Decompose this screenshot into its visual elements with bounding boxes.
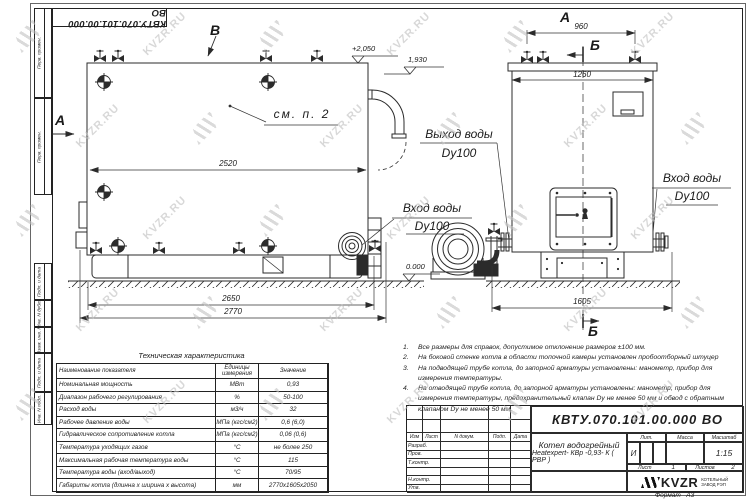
elevation-marks (330, 56, 444, 281)
section-b-top-label: Б (590, 37, 600, 53)
strip-box-perv-primen-1: Перв. примен. (34, 8, 52, 98)
tech-row-value: 32 (259, 404, 328, 417)
note-item: 1.Все размеры для справок, допустимое от… (403, 343, 741, 353)
product-model: Heatexpert- КВр -0,93- К ( РВР ) (532, 450, 626, 464)
water-outlet-dy: Dy100 (416, 146, 502, 160)
tech-row-name: Гидравлическое сопротивление котла (57, 429, 216, 442)
dim-1260: 1260 (557, 70, 607, 79)
format-label: Формат А3 (655, 492, 694, 499)
empty-cell (531, 471, 627, 493)
kvzr-logo-subtext: КОТЕЛЬНЫЙ ЗАВОД РЭП (701, 477, 728, 487)
mass-value (666, 442, 704, 464)
strip-label: Подп. и дата (37, 357, 42, 387)
tech-row-unit: МПа (кгс/см2) (216, 417, 259, 430)
tech-row-value: 50-100 (259, 392, 328, 405)
staff-rows: Разраб. Пров. Т.контр. Н.контр. Утв. (407, 442, 531, 493)
tech-row-name: Температура уходящих газов (57, 442, 216, 455)
water-inlet-left-dy: Dy100 (390, 219, 474, 233)
change-header-row: Изм Лист N докум. Подп. Дата (407, 433, 531, 442)
tech-row-value: 0,6 (6,0) (259, 417, 328, 430)
tech-row-name: Габариты котла (длинна х ширина х высота… (57, 479, 216, 492)
tech-row-value: 115 (259, 454, 328, 467)
tech-row-name: Номинальная мощность (57, 379, 216, 392)
lit-value: И (627, 442, 640, 464)
boiler-base (541, 252, 624, 278)
strip-label: Подп. и дата (37, 266, 42, 296)
drawing-sheet: КВТУ.070.101.00.000 ВО Перв. примен. Пер… (0, 0, 750, 500)
dim-960: 960 (556, 22, 606, 31)
scale-header: Масштаб (704, 433, 744, 442)
see-note-callout: см. п. 2 (264, 107, 340, 121)
tech-row-name: Максимальная рабочая температура воды (57, 454, 216, 467)
tech-row-value: 70/95 (259, 467, 328, 480)
strip-label: Перв. примен. (37, 131, 42, 163)
elevation-mid: 1,930 (408, 55, 427, 64)
tech-row-value: 0,06 (0,6) (259, 429, 328, 442)
section-a-label: А (55, 112, 65, 128)
company-logo-cell: KVZR КОТЕЛЬНЫЙ ЗАВОД РЭП (627, 471, 744, 493)
tech-table-title: Техническая характеристика (56, 351, 327, 360)
strip-box-vzam-inv: Взам. инв. N (34, 327, 52, 353)
tech-row-value: не более 250 (259, 442, 328, 455)
titleblock-doc-number: КВТУ.070.101.00.000 ВО (531, 406, 744, 433)
lit-cell-2 (640, 442, 653, 464)
boiler-side-view (68, 50, 424, 288)
strip-box-inv-podl: Инв. N подл. (34, 392, 52, 425)
scale-value: 1:15 (704, 442, 744, 464)
strip-box-podp-data-2: Подп. и дата (34, 353, 52, 392)
product-name-cell: Котел водогрейный Heatexpert- КВр -0,93-… (531, 433, 627, 471)
tech-row-name: Рабочее давление воды (57, 417, 216, 430)
lit-cell-3 (653, 442, 666, 464)
tech-row-value: 0,93 (259, 379, 328, 392)
water-outlet-label: Выход воды (416, 127, 502, 141)
dim-1605: 1605 (557, 297, 607, 306)
tech-row-name: Температура воды (вход/выход) (57, 467, 216, 480)
tech-row-unit: °С (216, 454, 259, 467)
tech-col-header: Значение (259, 364, 328, 379)
smoke-outlet-elbow (368, 90, 406, 170)
strip-label: Перв. примен. (37, 37, 42, 69)
tech-row-value: 2770х1605х2050 (259, 479, 328, 492)
change-rows (407, 406, 531, 433)
tech-row-unit: МВт (216, 379, 259, 392)
title-block: КВТУ.070.101.00.000 ВО Изм Лист N докум.… (406, 405, 743, 492)
boiler-front-view (486, 46, 680, 330)
note-item: 2.На боковой стенке котла в области топо… (403, 353, 741, 363)
tech-row-unit: °С (216, 467, 259, 480)
tech-col-header: Единицы измерения (216, 364, 259, 379)
tech-row-unit: °С (216, 442, 259, 455)
tech-col-header: Наименование показателя (57, 364, 216, 379)
tech-row-name: Диапазон рабочего регулирования (57, 392, 216, 405)
strip-label: Инв. N подл. (37, 394, 42, 422)
mass-header: Масса (666, 433, 704, 442)
furnace-door (550, 188, 617, 250)
tech-table: Наименование показателя Единицы измерени… (56, 363, 329, 493)
water-inlet-left-label: Вход воды (390, 201, 474, 215)
dim-2650: 2650 (206, 294, 256, 303)
top-doc-number-box: КВТУ.070.101.00.000 ВО (52, 8, 167, 27)
strip-box-podp-data-1: Подп. и дата (34, 263, 52, 300)
tech-row-unit: м3/ч (216, 404, 259, 417)
top-doc-number: КВТУ.070.101.00.000 ВО (53, 7, 166, 29)
sheets-cell: Листов 2 (686, 464, 744, 471)
strip-box-perv-primen-2: Перв. примен. (34, 98, 52, 195)
water-inlet-right-label: Вход воды (650, 171, 734, 185)
lit-header: Лит. (627, 433, 666, 442)
elevation-top: +2,050 (352, 44, 375, 53)
sheet-cell: Лист 1 (627, 464, 686, 471)
view-b-label: В (210, 22, 220, 38)
dim-2520: 2520 (203, 159, 253, 168)
tech-row-name: Расход воды (57, 404, 216, 417)
strip-label: Взам. инв. N (37, 326, 42, 354)
water-inlet-right-dy: Dy100 (650, 189, 734, 203)
elevation-zero: 0.000 (406, 262, 425, 271)
note-item: 3.На подводящей трубе котла, до запорной… (403, 364, 741, 385)
kvzr-logo-icon (641, 477, 660, 488)
section-b-bottom-label: Б (588, 323, 598, 339)
tech-row-unit: МПа (кгс/см2) (216, 429, 259, 442)
dim-2770: 2770 (208, 307, 258, 316)
strip-box-inv-dubl: Инв. N дубл. (34, 300, 52, 327)
tech-row-unit: мм (216, 479, 259, 492)
tech-row-unit: % (216, 392, 259, 405)
kvzr-logo-text: KVZR (661, 475, 698, 490)
strip-label: Инв. N дубл. (37, 300, 42, 328)
product-name: Котел водогрейный (539, 440, 620, 450)
